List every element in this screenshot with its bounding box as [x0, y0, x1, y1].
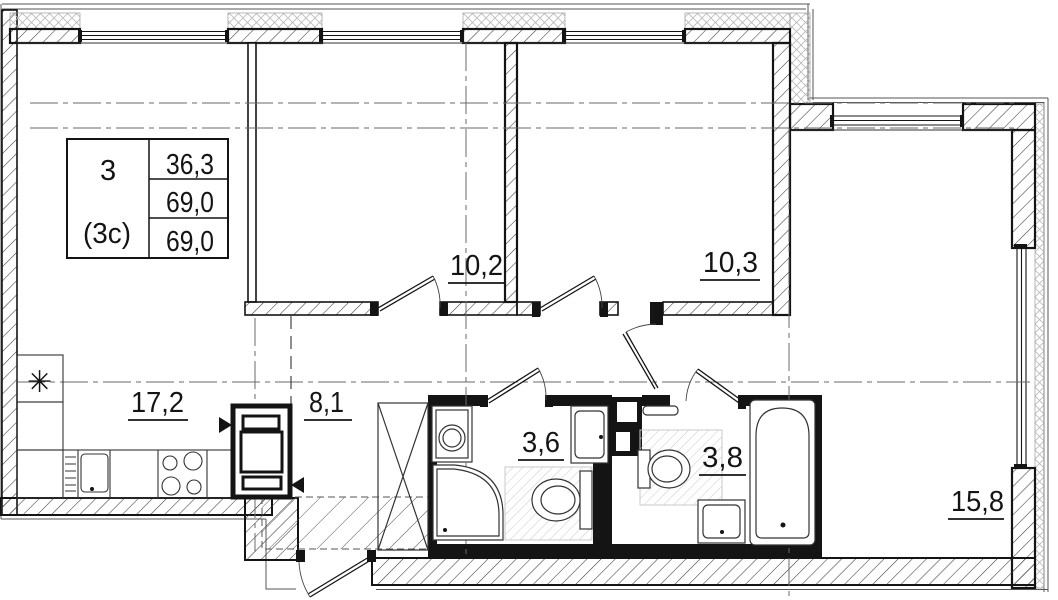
room-label-kitchen-living: 17,2	[128, 387, 188, 420]
room-area-value: 10,2	[450, 250, 503, 282]
toilet	[638, 450, 690, 488]
wall-left	[2, 10, 17, 515]
wall-bedroom2-south	[517, 302, 773, 315]
room-area-value: 3,8	[702, 442, 743, 474]
stove	[162, 452, 202, 495]
bathroom1-sink	[571, 406, 608, 463]
bathtub	[750, 400, 815, 545]
room-label-hallway: 8,1	[304, 387, 352, 420]
wall-kitchen-bedroom1	[248, 43, 256, 302]
wall-bottom	[372, 558, 1035, 585]
total-area-value: 69,0	[166, 187, 214, 219]
door-living-room	[623, 324, 658, 389]
shower-tray	[433, 465, 503, 540]
door-bathroom2	[686, 369, 741, 403]
bathroom2-sink	[698, 500, 745, 543]
door-entrance	[299, 557, 371, 597]
vent-arrow-icon	[219, 417, 232, 433]
apartment-rooms-count: 3	[100, 155, 116, 187]
door-bathroom1	[487, 368, 546, 403]
info-table: 3 (3с) 36,3 69,0 69,0	[67, 139, 228, 258]
fridge-symbol: ✳	[27, 366, 52, 399]
kitchen-sink	[65, 454, 108, 492]
washing-machine	[432, 406, 472, 462]
room-label-bathroom-2: 3,8	[699, 442, 746, 475]
floor-plan-drawing: ✳	[0, 0, 1058, 600]
vent-shaft-bathrooms	[612, 397, 642, 456]
vent-arrow-icon	[291, 477, 304, 493]
room-area-value: 8,1	[309, 387, 344, 419]
wall-bottom-left	[0, 498, 272, 515]
shelf	[643, 406, 678, 415]
total-area-final-value: 69,0	[166, 226, 214, 258]
window-kitchen	[80, 32, 228, 40]
wall-bedroom1-bedroom2	[505, 43, 517, 302]
room-area-value: 17,2	[131, 387, 184, 419]
room-area-value: 10,3	[703, 247, 758, 279]
floor-plan: ✳	[0, 0, 1058, 600]
room-label-bathroom-1: 3,6	[518, 427, 564, 460]
room-label-bedroom-1: 10,2	[448, 250, 505, 283]
window-bedroom-1	[322, 32, 463, 40]
wall-bedroom2-living	[773, 43, 790, 315]
hall-vent-shaft	[219, 406, 304, 497]
door-bedroom2	[540, 276, 602, 311]
room-label-bedroom-2: 10,3	[700, 247, 760, 280]
window-living-right	[1017, 248, 1026, 468]
living-area-value: 36,3	[166, 149, 214, 181]
wall-bedroom1-south	[245, 302, 517, 315]
room-label-living-room: 15,8	[948, 486, 1004, 519]
window-living-top	[833, 116, 963, 125]
door-bedroom1	[378, 276, 440, 311]
room-area-value: 3,6	[522, 427, 560, 459]
room-area-value: 15,8	[951, 486, 1004, 518]
entry-floor-zone	[262, 497, 428, 549]
apartment-plan-type: (3с)	[83, 218, 131, 250]
window-bedroom-2	[565, 32, 685, 40]
